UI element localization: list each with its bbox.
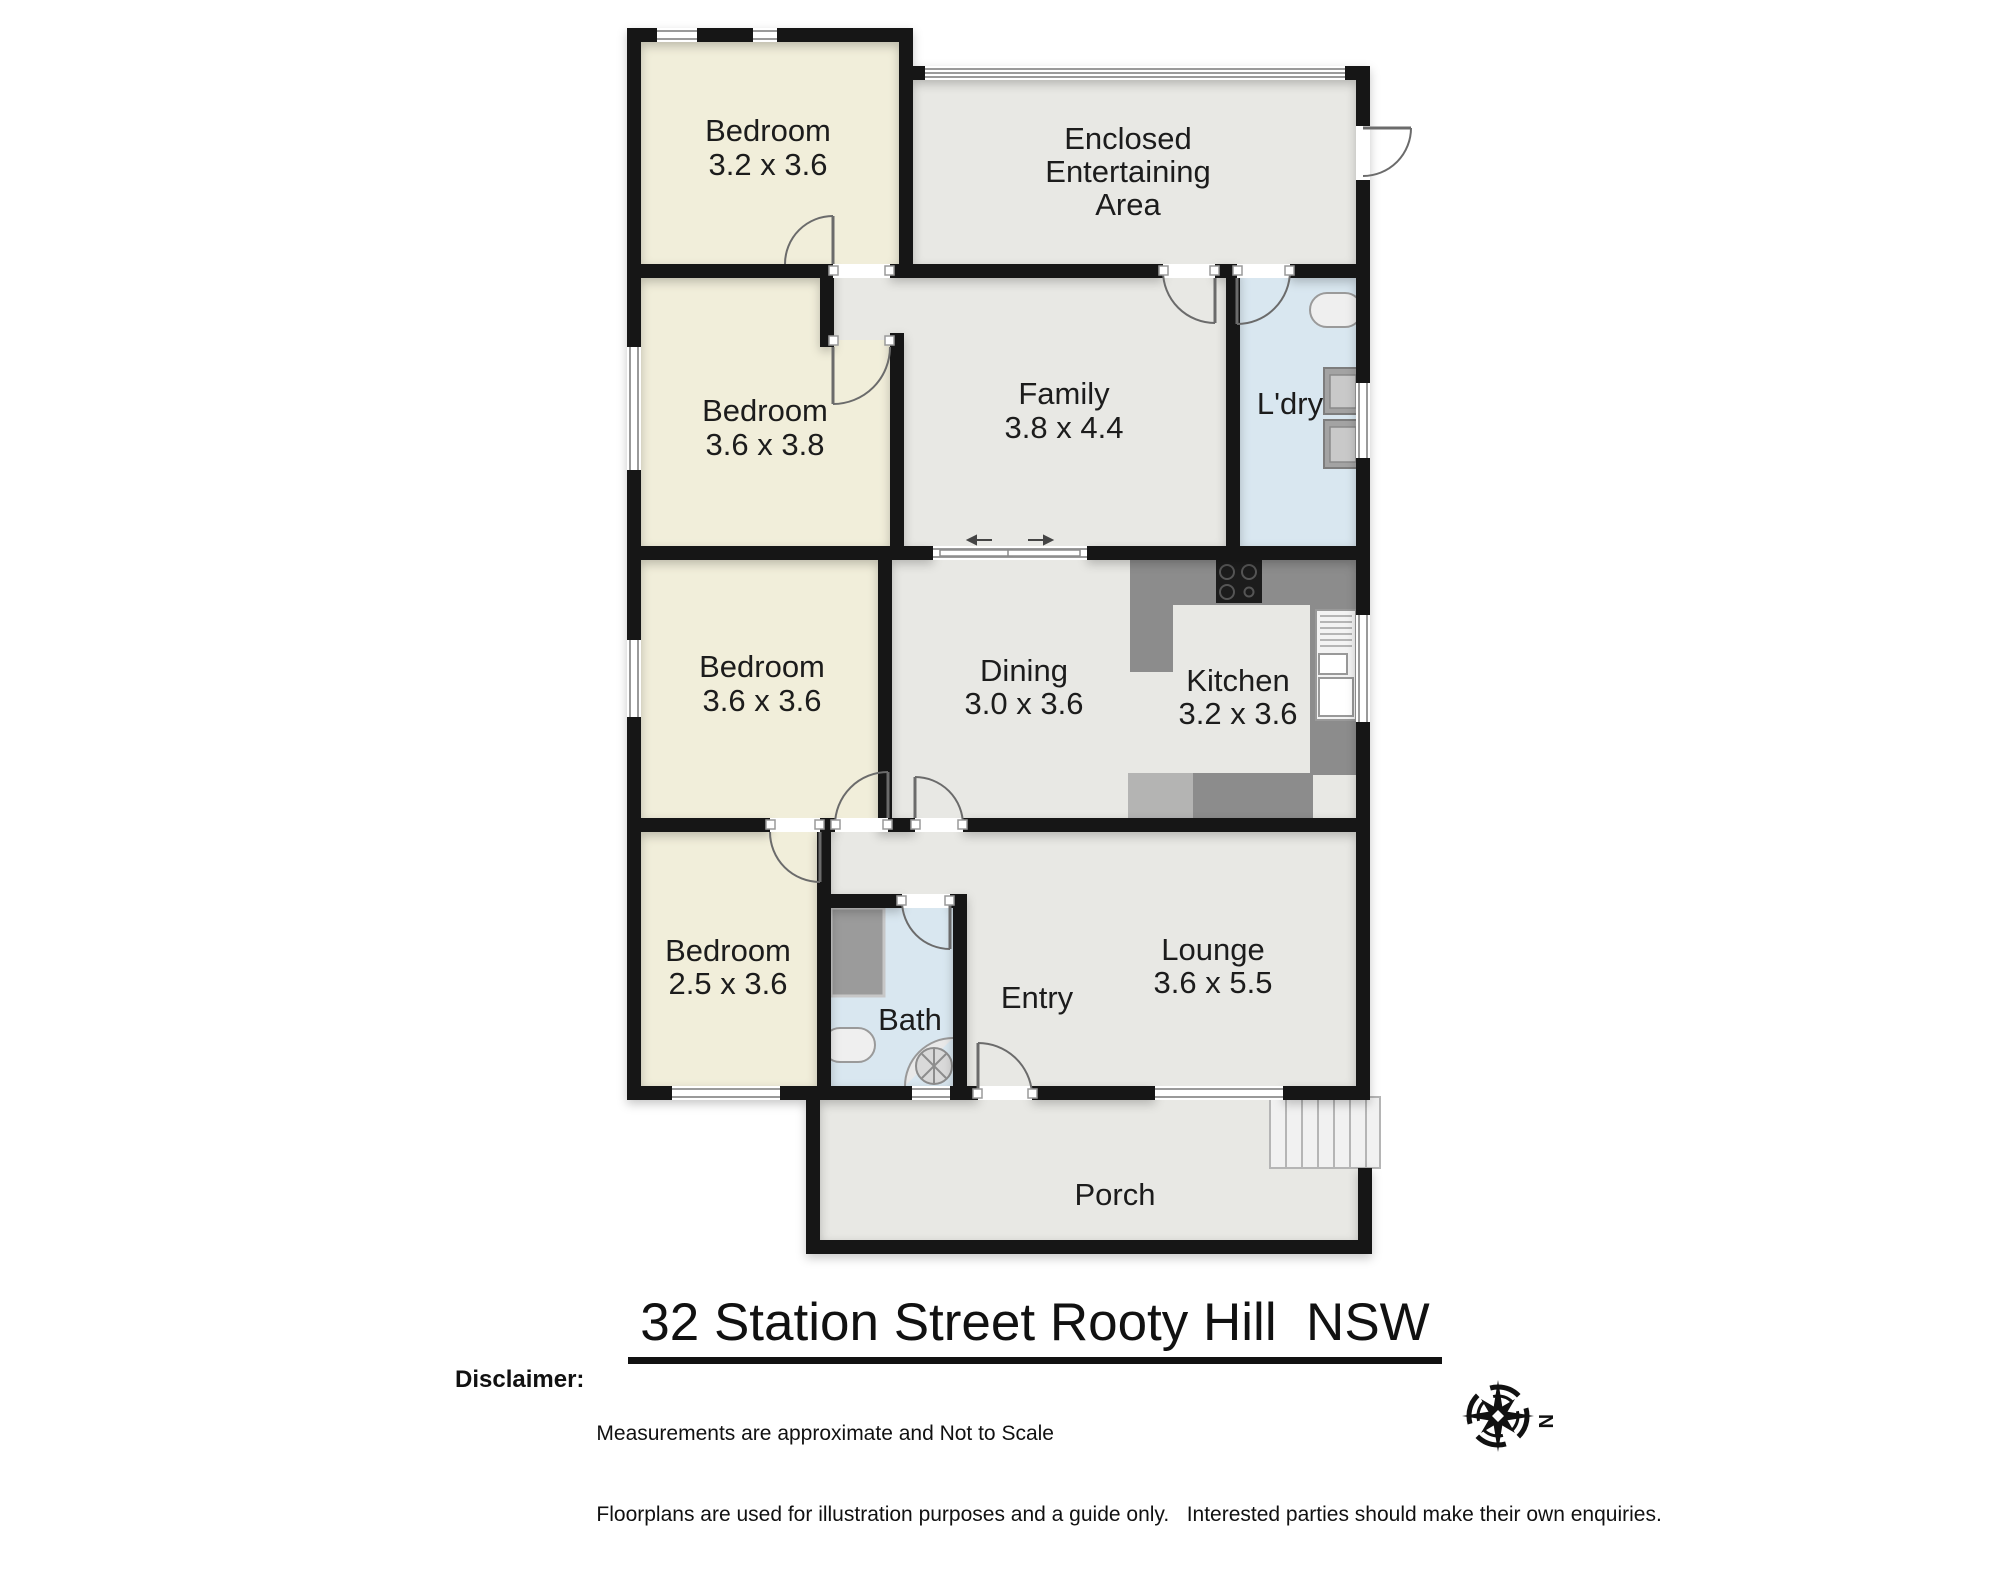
counter-bottom-light [1128,773,1193,818]
counter-bottom-band [1193,773,1313,818]
wall-segment [1356,66,1370,1100]
bedroom-2-label: Bedroom [702,393,828,428]
wall-segment [627,264,833,278]
window [1356,383,1370,458]
entry-label: Entry [1001,980,1074,1015]
wall-segment [899,28,913,278]
shower-icon [831,908,884,996]
wall-segment [817,894,902,908]
dining-label: Dining [980,653,1068,688]
laundry-label: L'dry [1257,386,1324,421]
lounge-label: Lounge [1161,932,1264,967]
wall-segment [1087,546,1370,560]
compass-north-label: N [1534,1414,1556,1428]
wall-segment [953,894,967,1100]
floor-plan: Bedroom 3.2 x 3.6 Enclosed Entertaining … [0,0,2000,1500]
lounge-dims: 3.6 x 5.5 [1154,965,1273,1000]
window [912,1086,950,1100]
wall-segment [878,560,892,832]
bedroom-1-label: Bedroom [705,113,831,148]
bath-label: Bath [878,1002,942,1037]
window [627,640,641,717]
kitchen-sink-icon [1316,610,1356,720]
wall-segment [806,1240,1372,1254]
porch-stairs [1270,1097,1380,1168]
entertaining-label-line1: Enclosed [1064,121,1192,156]
counter-left-arm [1130,560,1173,672]
wall-segment [1032,1086,1155,1100]
window [627,347,641,470]
dining-dims: 3.0 x 3.6 [965,686,1084,721]
wall-segment [1283,1086,1370,1100]
bedroom-1-dims: 3.2 x 3.6 [709,147,828,182]
window [753,28,777,42]
porch-label: Porch [1075,1177,1156,1212]
address-title: 32 Station Street Rooty Hill NSW [600,1292,1470,1364]
wall-segment [963,818,1370,832]
window [657,28,697,42]
window [925,66,1345,80]
family-dims: 3.8 x 4.4 [1005,410,1124,445]
entertaining-label-line3: Area [1095,187,1161,222]
window [1155,1086,1283,1100]
bedroom-4-dims: 2.5 x 3.6 [669,966,788,1001]
room-fills [641,42,1358,1240]
bedroom-4-label: Bedroom [665,933,791,968]
wall-segment [627,818,770,832]
wall-segment [890,333,904,560]
door-swing [1356,126,1411,180]
bedroom-3-dims: 3.6 x 3.6 [703,683,822,718]
bedroom-3-label: Bedroom [699,649,825,684]
bedroom-2-dims: 3.6 x 3.8 [706,427,825,462]
wall-segment [627,28,641,1100]
wall-segment [820,264,834,347]
window [672,1086,780,1100]
family-label: Family [1018,376,1110,411]
cooktop-icon [1216,560,1262,603]
disclaimer-label: Disclaimer: [455,1366,584,1393]
entertaining-label-line2: Entertaining [1045,154,1210,189]
wall-segment [1290,264,1370,278]
address-title-text: 32 Station Street Rooty Hill NSW [628,1292,1441,1364]
kitchen-label: Kitchen [1186,663,1289,698]
wall-segment [627,546,933,560]
kitchen-dims: 3.2 x 3.6 [1179,696,1298,731]
window [1356,615,1370,722]
wall-segment [890,264,1163,278]
laundry-trough-icon [1310,293,1362,327]
wall-segment [806,1098,820,1254]
wall-segment [1358,1168,1372,1254]
compass-rose-icon: N [1460,1372,1570,1467]
disclaimer-line-2: Floorplans are used for illustration pur… [596,1501,1661,1528]
